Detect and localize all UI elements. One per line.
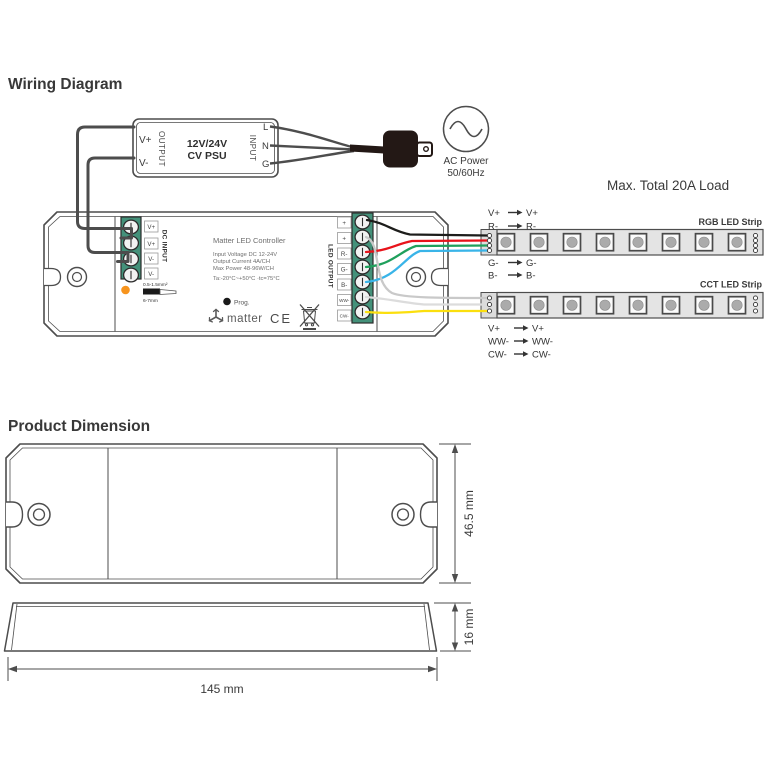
led-chip-icon xyxy=(663,234,680,251)
led-chip-icon xyxy=(564,234,581,251)
arrow-icon xyxy=(508,272,523,278)
ac-neutral-wire xyxy=(270,146,354,150)
ac-ground-wire xyxy=(270,151,354,164)
led-chip-icon xyxy=(696,234,713,251)
arrow-icon xyxy=(452,574,458,583)
controller-title: Matter LED Controller xyxy=(213,236,286,245)
led-output-label: LED OUTPUT xyxy=(327,244,334,288)
led-chip-icon xyxy=(597,297,614,314)
ac-power-label-line2: 50/60Hz xyxy=(447,168,484,179)
right-screw-hole-icon xyxy=(407,268,426,287)
terminal-screw-icon xyxy=(355,215,370,229)
psu-unit: V+ V- OUTPUT 12V/24V CV PSU INPUT L N G xyxy=(133,119,278,177)
dc-input-label: DC INPUT xyxy=(161,230,168,263)
thickness-dimension-label: 16 mm xyxy=(462,609,476,646)
product-side-view xyxy=(5,603,437,651)
left-screw-hole-icon xyxy=(68,268,87,287)
psu-input-label: INPUT xyxy=(248,135,257,162)
plug-body xyxy=(383,131,418,168)
ac-plug-icon xyxy=(350,131,432,168)
psu-ground-terminal: G xyxy=(262,159,269,170)
psu-model-line1: 12V/24V xyxy=(187,138,227,150)
controller-spec-voltage: Input Voltage DC 12-24V xyxy=(213,252,277,258)
wire-label-from: R- xyxy=(488,222,498,233)
wire-label-to: CW- xyxy=(532,350,551,361)
wire-label-from: CW- xyxy=(488,350,507,361)
led-terminal-label: R- xyxy=(341,251,348,258)
wiring-and-dimension-diagram: Wiring Diagram V+ V- OUTPUT 12V/24V CV P… xyxy=(0,0,779,779)
led-terminal-label: G- xyxy=(341,267,348,274)
wire-label-to: V+ xyxy=(532,324,544,335)
led-terminal-label: WW- xyxy=(339,298,350,303)
controller-spec-power: Max Power 48-96W/CH xyxy=(213,266,274,272)
led-terminal-label: CW- xyxy=(340,314,350,319)
arrow-icon xyxy=(452,444,458,453)
plug-prong-hole xyxy=(424,147,429,152)
led-terminal-label: + xyxy=(342,236,346,243)
product-top-view xyxy=(6,444,437,583)
wire-label-from: V+ xyxy=(488,208,500,219)
led-chip-icon xyxy=(630,297,647,314)
arrow-icon xyxy=(508,210,523,216)
arrow-icon xyxy=(514,351,529,357)
led-chip-icon xyxy=(564,297,581,314)
psu-output-negative-label: V- xyxy=(139,158,148,169)
length-dimension: 145 mm xyxy=(8,657,437,696)
max-load-note: Max. Total 20A Load xyxy=(607,178,729,193)
wire-label-to: G- xyxy=(526,258,537,269)
psu-model-line2: CV PSU xyxy=(187,150,226,162)
led-chip-icon xyxy=(630,234,647,251)
cct-strip-title: CCT LED Strip xyxy=(700,280,763,290)
ac-line-wire xyxy=(270,127,354,148)
strip-length-label: 6-7mm xyxy=(143,298,158,304)
controller-unit: V+ V+ V- V- DC INPUT 0.5-1.5mm² 6-7mm Ma… xyxy=(44,212,448,336)
led-terminal-label: B- xyxy=(341,282,347,289)
wire-label-to: R- xyxy=(526,222,536,233)
psu-output-positive-label: V+ xyxy=(139,135,152,146)
led-chip-icon xyxy=(531,297,548,314)
arrow-icon xyxy=(514,338,529,344)
right-screw-hole-icon xyxy=(392,504,414,526)
brand-label: matter xyxy=(227,313,263,325)
led-chip-icon xyxy=(729,297,746,314)
height-dimension-label: 46.5 mm xyxy=(462,490,476,537)
arrow-icon xyxy=(8,666,17,672)
cct-strip-wire-labels: V+ V+ WW- WW- CW- CW- xyxy=(488,324,553,361)
arrow-icon xyxy=(452,603,458,612)
led-chip-icon xyxy=(498,234,515,251)
led-chip-icon xyxy=(729,234,746,251)
height-dimension: 46.5 mm xyxy=(439,444,476,583)
arrow-icon xyxy=(452,643,458,652)
arrow-icon xyxy=(508,223,523,229)
controller-spec-temp: Ta:-20°C~+50°C ·tc=75°C xyxy=(213,276,280,282)
wire-label-to: V+ xyxy=(526,208,538,219)
wire-label-from: V+ xyxy=(488,324,500,335)
psu-neutral-terminal: N xyxy=(262,141,269,152)
ce-mark: CE xyxy=(270,311,292,326)
ac-power-symbol: AC Power 50/60Hz xyxy=(443,107,489,180)
arrow-icon xyxy=(428,666,437,672)
led-chip-icon xyxy=(696,297,713,314)
dc-terminal-label: V- xyxy=(148,256,154,263)
controller-spec-current: Output Current 4A/CH xyxy=(213,259,270,265)
left-screw-hole-icon xyxy=(28,504,50,526)
led-terminal-label: + xyxy=(342,220,346,227)
arrow-icon xyxy=(514,325,529,331)
psu-line-terminal: L xyxy=(263,122,268,133)
wire-label-to: B- xyxy=(526,271,536,282)
dc-terminal-label: V- xyxy=(148,271,154,278)
plug-cable xyxy=(350,145,384,154)
wiring-diagram-heading: Wiring Diagram xyxy=(8,76,122,93)
wiring-datasheet-page: Wiring Diagram V+ V- OUTPUT 12V/24V CV P… xyxy=(0,0,779,779)
terminal-screw-icon xyxy=(124,268,139,282)
dc-terminal-label: V+ xyxy=(147,241,155,248)
prog-button-label: Prog. xyxy=(234,300,250,307)
led-chip-icon xyxy=(597,234,614,251)
terminal-screw-icon xyxy=(124,252,139,266)
ac-input-wires xyxy=(270,127,354,164)
wire-gauge-label: 0.5-1.5mm² xyxy=(143,282,168,288)
rgb-strip-title: RGB LED Strip xyxy=(698,217,762,227)
length-dimension-label: 145 mm xyxy=(200,682,243,696)
arrow-icon xyxy=(508,260,523,266)
prog-button-icon[interactable] xyxy=(223,298,231,306)
led-chip-icon xyxy=(531,234,548,251)
dc-terminal-label: V+ xyxy=(147,224,155,231)
led-chip-icon xyxy=(498,297,515,314)
wire-label-from: B- xyxy=(488,271,498,282)
wire-label-from: G- xyxy=(488,258,499,269)
psu-output-label: OUTPUT xyxy=(157,131,166,167)
product-dimension-heading: Product Dimension xyxy=(8,418,150,435)
wire-label-from: WW- xyxy=(488,337,509,348)
wire-label-to: WW- xyxy=(532,337,553,348)
status-led-icon xyxy=(121,286,130,295)
led-chip-icon xyxy=(663,297,680,314)
thickness-dimension: 16 mm xyxy=(434,603,476,651)
ac-power-label-line1: AC Power xyxy=(443,156,489,167)
